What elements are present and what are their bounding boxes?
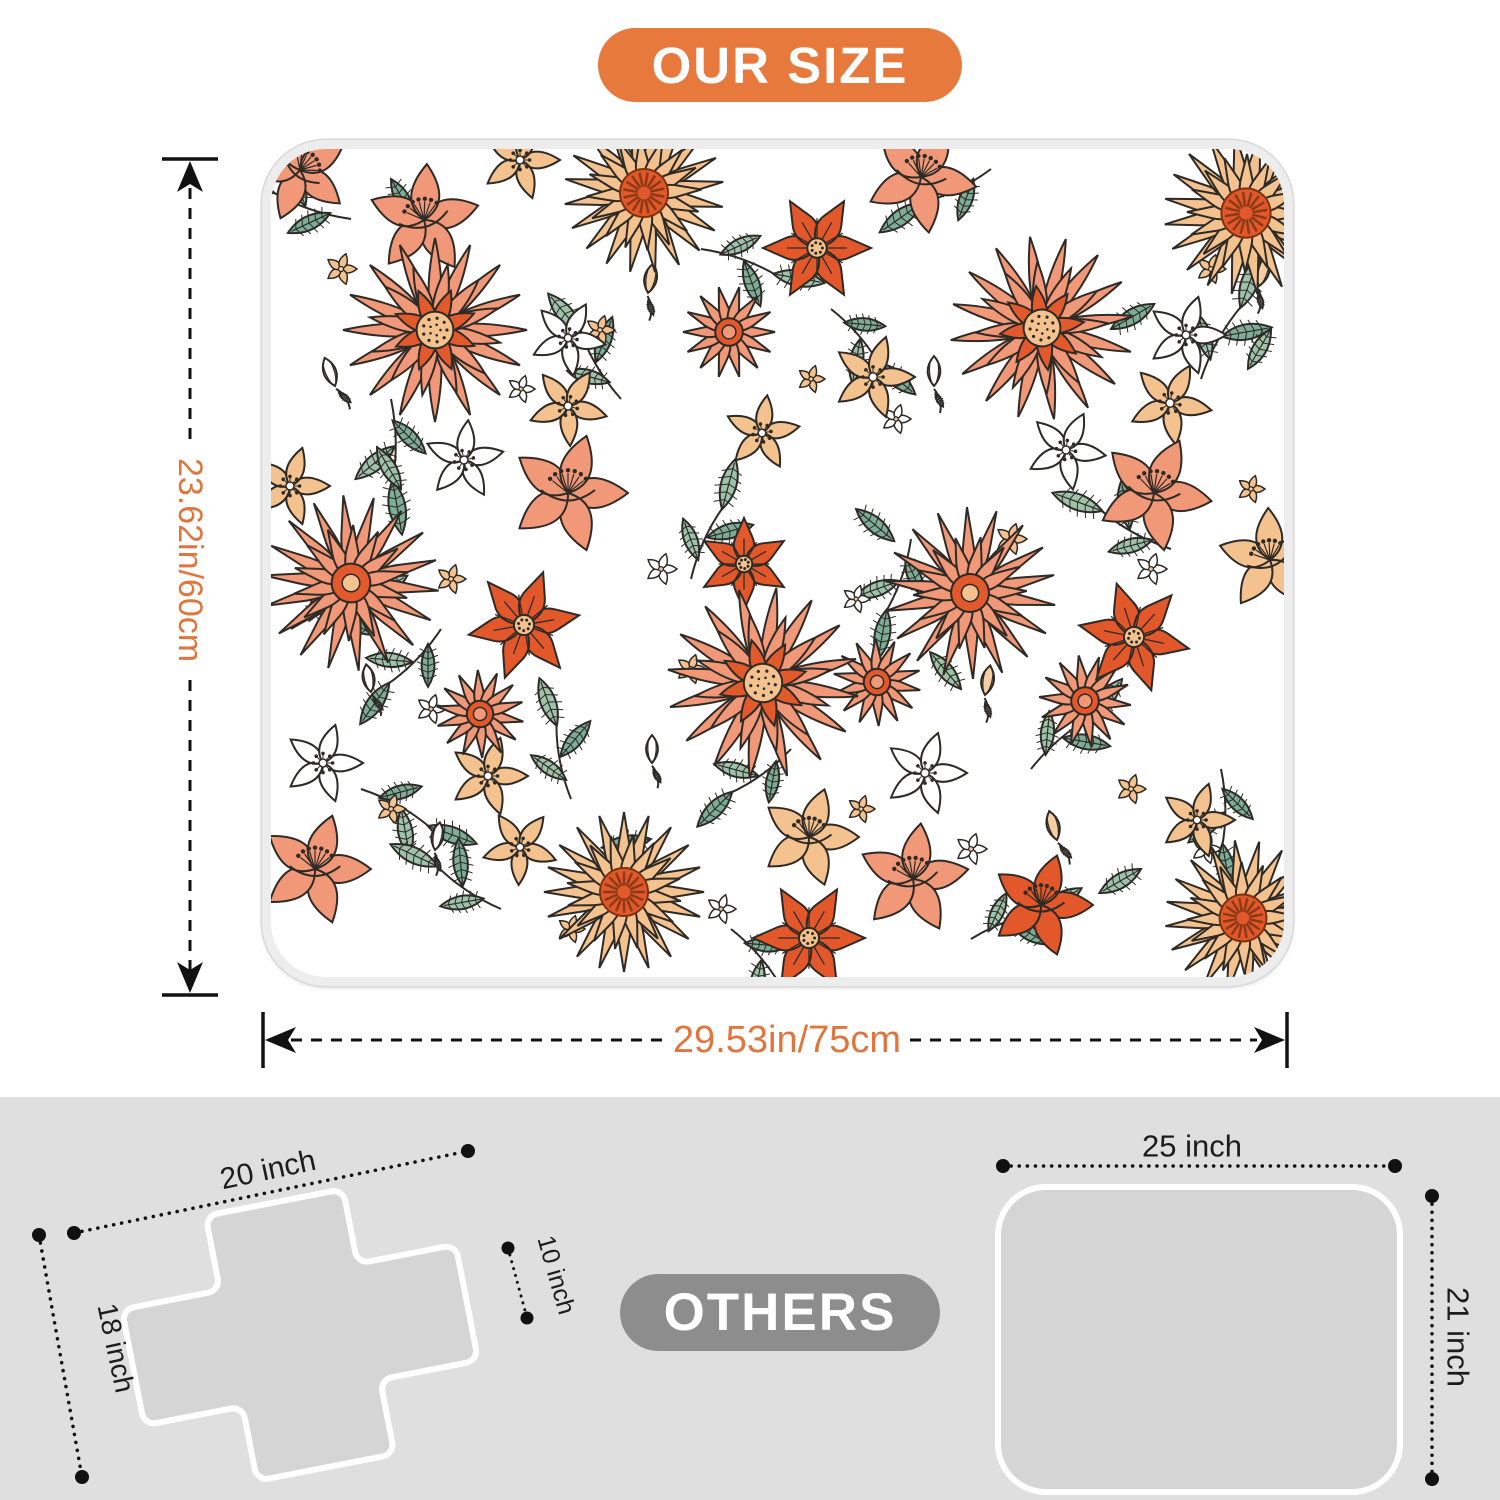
poppy-flower (511, 431, 628, 554)
height-dimension-label: 23.62in/60cm (171, 458, 209, 662)
rect-mat-figure: 25 inch 21 inch (960, 1120, 1500, 1500)
daffodil-flower (459, 561, 588, 688)
tiny-white-flower (508, 375, 535, 404)
tiny-white-flower (707, 894, 736, 925)
flower-bud (928, 356, 947, 413)
tiny-peach-flower (848, 795, 875, 824)
flower-bud (974, 664, 1002, 723)
cross-arm-label: 10 inch (531, 1232, 580, 1317)
flower-bud (637, 262, 665, 321)
rect-mat-outline (998, 1187, 1400, 1492)
others-badge: OTHERS (620, 1274, 940, 1351)
sunflower (544, 812, 704, 972)
height-dimension: 23.62in/60cm (150, 148, 230, 1008)
peach-flower (483, 149, 560, 201)
cross-mat-figure: 20 inch 18 inch 10 inch (20, 1120, 600, 1500)
peach-flower (451, 735, 528, 816)
our-size-badge-label: OUR SIZE (652, 36, 909, 95)
leaf-spray (517, 670, 606, 803)
others-badge-label: OTHERS (664, 1282, 897, 1343)
flower-bud (1043, 808, 1076, 868)
rect-height-label: 21 inch (1441, 1287, 1476, 1387)
cross-mat-shape (107, 1170, 492, 1500)
white-flower (886, 730, 967, 815)
poppy-flower (271, 811, 371, 926)
cross-width-label: 20 inch (217, 1144, 318, 1196)
width-dimension: 29.53in/75cm (255, 1000, 1300, 1080)
small-daisy (429, 663, 531, 765)
peach-flower (834, 334, 915, 419)
sunflower (551, 149, 736, 286)
peach-poppy-flower (761, 786, 859, 889)
floral-pattern (271, 149, 1284, 977)
cross-arm-dotted-line (508, 1248, 527, 1318)
white-flower (419, 412, 512, 508)
leaf (848, 499, 903, 551)
poppy-flower (357, 150, 493, 290)
small-daisy (823, 628, 931, 736)
white-flower (286, 722, 363, 803)
rect-width-label: 25 inch (1142, 1129, 1242, 1164)
floral-dish-mat (262, 140, 1293, 986)
width-dimension-label: 29.53in/75cm (673, 1019, 901, 1061)
cross-arm-dimension: 10 inch (502, 1232, 581, 1324)
peach-poppy-flower (1205, 492, 1284, 627)
cross-side-dotted-line (39, 1235, 82, 1477)
height-arrowhead-up (177, 161, 203, 192)
tiny-white-flower (956, 833, 987, 866)
dahlia-flower (343, 238, 527, 422)
cross-mat-outline (107, 1170, 492, 1500)
leaf (1093, 858, 1147, 904)
peach-flower (473, 799, 568, 897)
tiny-white-flower (646, 553, 677, 586)
flower-bud (319, 354, 356, 414)
white-flower (1149, 294, 1226, 375)
tiny-white-flower (1136, 553, 1167, 586)
tiny-peach-flower (1117, 774, 1146, 805)
dahlia-flower (655, 575, 872, 792)
leaf-spray (804, 285, 935, 428)
rect-height-dimension: 21 inch (1425, 1189, 1476, 1486)
cross-side-dimension: 18 inch (32, 1228, 141, 1484)
rect-width-dimension: 25 inch (996, 1129, 1402, 1174)
poppy-flower (271, 149, 374, 244)
tiny-peach-flower (1238, 475, 1265, 504)
poppy-flower (1091, 426, 1220, 560)
white-flower (1023, 405, 1111, 496)
width-arrowhead-right (1254, 1027, 1285, 1053)
tiny-peach-flower (798, 365, 825, 394)
flower-bud (646, 735, 663, 788)
poppy-flower (850, 813, 978, 945)
tiny-peach-flower (326, 253, 357, 286)
our-size-badge: OUR SIZE (598, 28, 962, 102)
tiny-peach-flower (437, 564, 466, 595)
daffodil-flower (753, 883, 865, 977)
